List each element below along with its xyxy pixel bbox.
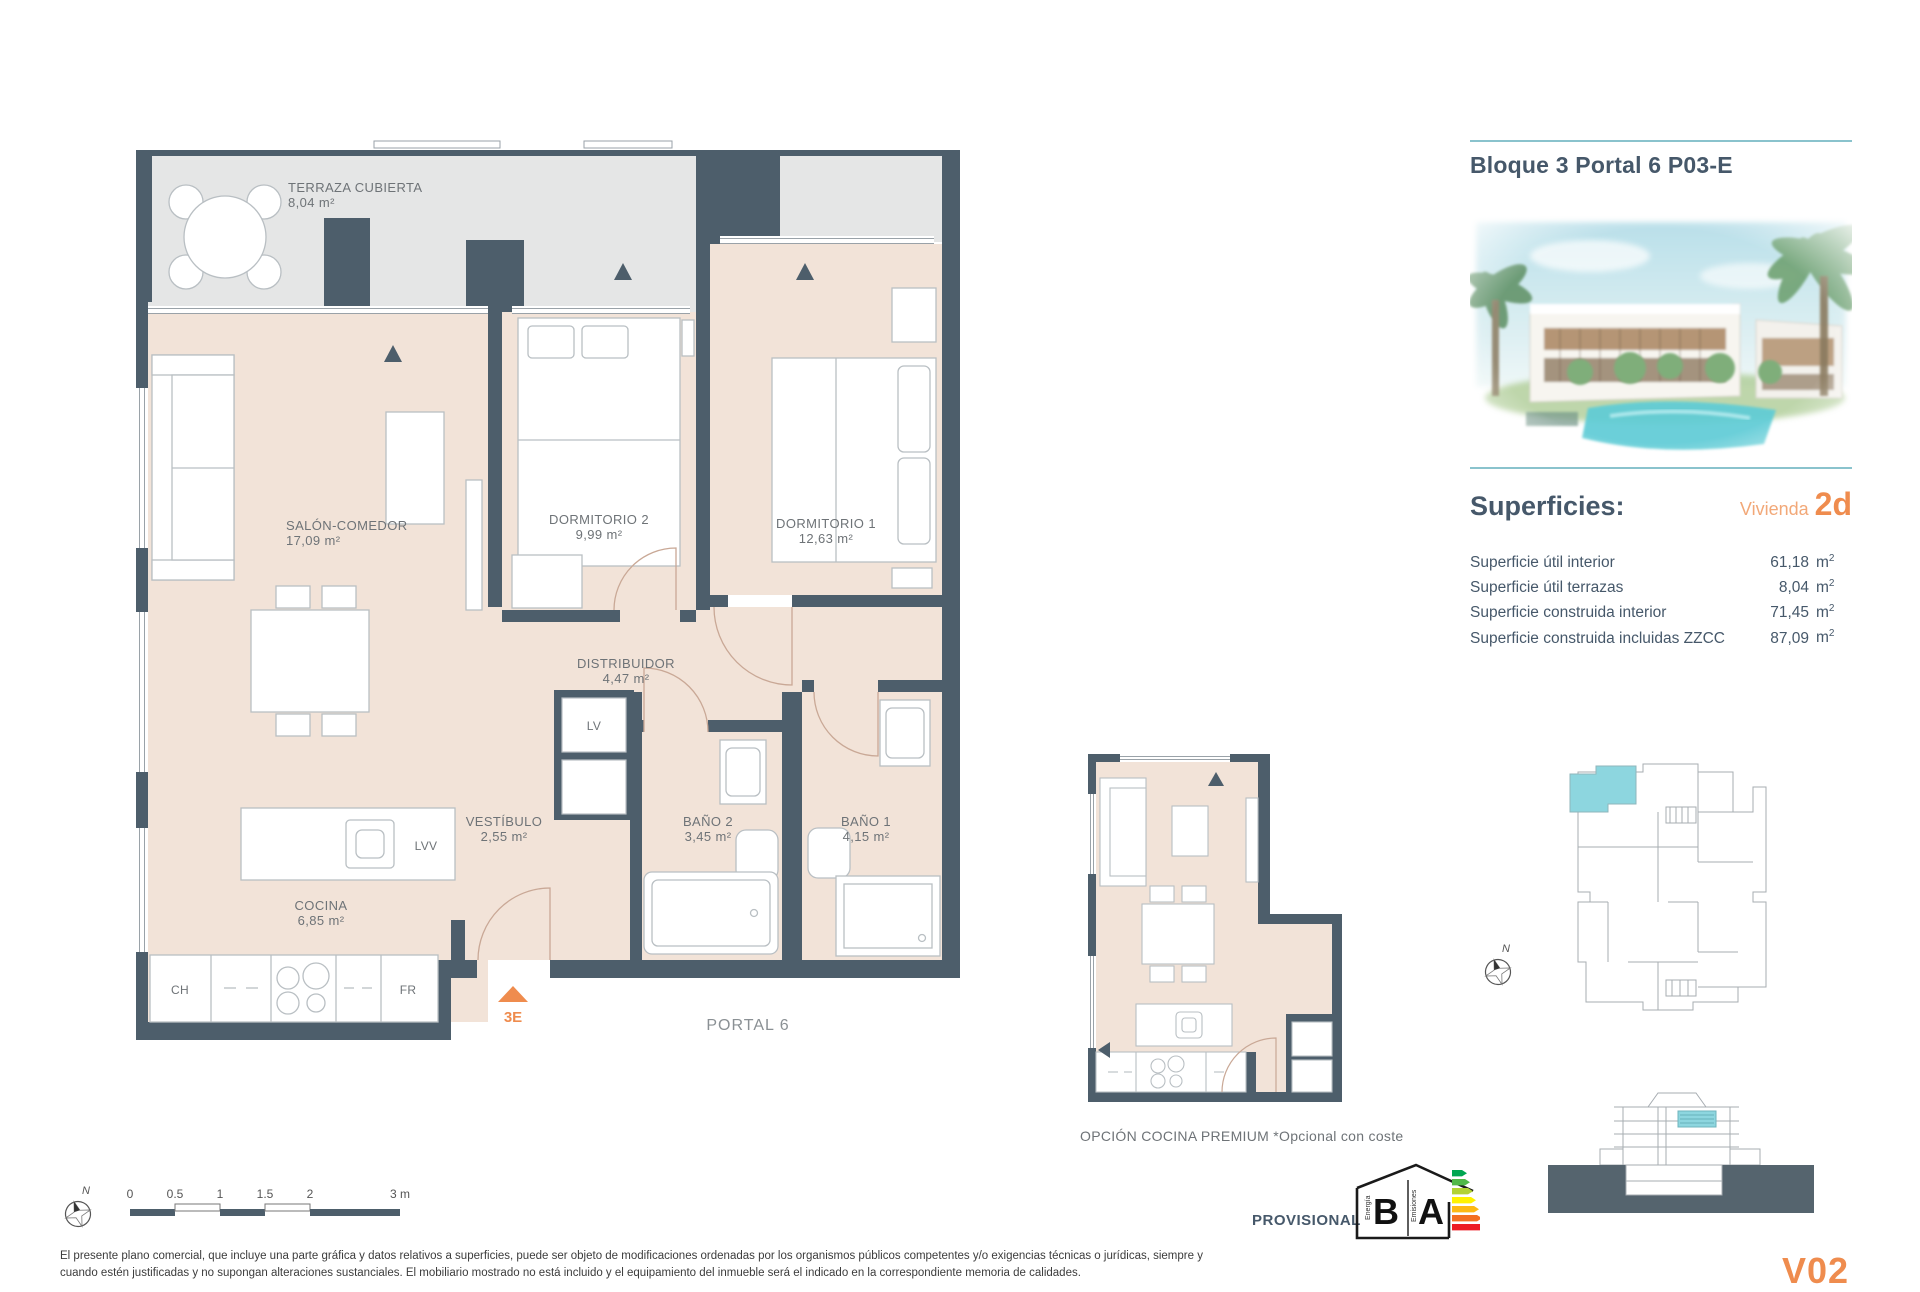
energy-arrows xyxy=(1452,1170,1480,1230)
main-floor-plan: TERRAZA CUBIERTA 8,04 m² SALÓN-COMEDOR 1… xyxy=(136,140,960,1040)
building-rendering-image xyxy=(1470,216,1852,456)
superficie-row: Superficie construida interior 71,45 m2 xyxy=(1470,598,1852,623)
superficie-value: 61,18 xyxy=(1751,552,1809,573)
vivienda-label: Vivienda xyxy=(1740,499,1809,519)
superficie-value: 87,09 xyxy=(1751,628,1809,649)
keyplan-compass: N xyxy=(1478,940,1522,992)
bedroom1-label: DORMITORIO 1 xyxy=(776,516,876,531)
superficie-value: 8,04 xyxy=(1751,577,1809,598)
entrance-code-label: 3E xyxy=(504,1009,522,1026)
lv-label: LV xyxy=(587,719,601,733)
svg-text:17,09 m²: 17,09 m² xyxy=(286,533,341,548)
superficie-label: Superficie construida incluidas ZZCC xyxy=(1470,628,1751,649)
superficie-unit: m2 xyxy=(1809,573,1852,598)
legal-disclaimer: El presente plano comercial, que incluye… xyxy=(60,1248,1310,1281)
kitchen-counter xyxy=(150,955,438,1022)
building-section xyxy=(1548,1085,1816,1217)
kitchen-label: COCINA xyxy=(295,898,348,913)
superficies-table: Superficie útil interior 61,18 m2 Superf… xyxy=(1470,548,1852,649)
svg-text:3,45 m²: 3,45 m² xyxy=(685,829,732,844)
superficie-row: Superficie útil interior 61,18 m2 xyxy=(1470,548,1852,573)
scale-tick: 3 m xyxy=(390,1187,410,1201)
svg-text:12,63 m²: 12,63 m² xyxy=(799,531,854,546)
hall-label: DISTRIBUIDOR xyxy=(577,656,675,671)
disclaimer-line: cuando estén justificadas y no supongan … xyxy=(60,1265,1310,1282)
fr-unit-label: FR xyxy=(400,983,417,997)
superficie-label: Superficie útil interior xyxy=(1470,552,1751,573)
provisional-label: PROVISIONAL xyxy=(1252,1212,1361,1229)
premium-kitchen-plan xyxy=(1080,746,1348,1106)
plan-compass: N xyxy=(58,1182,102,1234)
emissions-letter: A xyxy=(1418,1191,1444,1232)
scale-tick: 0 xyxy=(127,1187,134,1201)
svg-text:9,99 m²: 9,99 m² xyxy=(576,527,623,542)
terrace-table-set xyxy=(169,185,281,289)
superficie-unit: m2 xyxy=(1809,598,1852,623)
energy-certificate-icon: Energía Emisiones B A xyxy=(1352,1158,1480,1244)
bedroom2-label: DORMITORIO 2 xyxy=(549,512,649,527)
scale-tick: 2 xyxy=(307,1187,314,1201)
svg-text:6,85 m²: 6,85 m² xyxy=(298,913,345,928)
scale-tick: 1.5 xyxy=(257,1187,274,1201)
bedroom2-furniture xyxy=(512,318,694,608)
key-plan xyxy=(1548,752,1798,1052)
highlighted-floor xyxy=(1678,1111,1716,1127)
superficie-label: Superficie útil terrazas xyxy=(1470,577,1751,598)
scale-tick: 0.5 xyxy=(167,1187,184,1201)
terrace-label: TERRAZA CUBIERTA xyxy=(288,180,423,195)
superficie-label: Superficie construida interior xyxy=(1470,602,1751,623)
superficies-header: Superficies: Vivienda2d xyxy=(1470,486,1852,523)
superficie-unit: m2 xyxy=(1809,548,1852,573)
entrance-triangle-icon xyxy=(498,986,528,1002)
energy-letter: B xyxy=(1373,1191,1399,1232)
terrace-strip-floor xyxy=(780,156,942,242)
floorplan-sheet: { "header": { "title": "Bloque 3 Portal … xyxy=(0,0,1920,1280)
mid-divider xyxy=(1470,467,1852,469)
compass-north-label: N xyxy=(1502,943,1510,955)
svg-text:4,47 m²: 4,47 m² xyxy=(603,671,650,686)
portal-label: PORTAL 6 xyxy=(706,1017,789,1034)
living-label: SALÓN-COMEDOR xyxy=(286,518,408,533)
superficie-unit: m2 xyxy=(1809,623,1852,648)
superficies-heading: Superficies: xyxy=(1470,491,1625,522)
vestibule-label: VESTÍBULO xyxy=(466,814,543,829)
energy-axis-label: Energía xyxy=(1365,1195,1372,1220)
lvv-label: LVV xyxy=(415,839,438,853)
superficie-row: Superficie útil terrazas 8,04 m2 xyxy=(1470,573,1852,598)
svg-text:4,15 m²: 4,15 m² xyxy=(843,829,890,844)
top-divider xyxy=(1470,140,1852,142)
svg-text:8,04 m²: 8,04 m² xyxy=(288,195,335,210)
scale-tick: 1 xyxy=(217,1187,224,1201)
compass-north-label: N xyxy=(82,1185,90,1197)
sheet-version: V02 xyxy=(1782,1250,1849,1292)
page-title: Bloque 3 Portal 6 P03-E xyxy=(1470,152,1733,179)
superficie-row: Superficie construida incluidas ZZCC 87,… xyxy=(1470,623,1852,648)
vivienda-code: 2d xyxy=(1815,486,1852,522)
bath1-label: BAÑO 1 xyxy=(841,814,891,829)
ch-unit-label: CH xyxy=(171,983,189,997)
scale-bar: 0 0.5 1 1.5 2 3 m xyxy=(120,1184,410,1228)
disclaimer-line: El presente plano comercial, que incluye… xyxy=(60,1248,1310,1265)
svg-text:2,55 m²: 2,55 m² xyxy=(481,829,528,844)
superficie-value: 71,45 xyxy=(1751,602,1809,623)
premium-kitchen-caption: OPCIÓN COCINA PREMIUM *Opcional con cost… xyxy=(1080,1128,1440,1144)
emissions-axis-label: Emisiones xyxy=(1411,1189,1418,1222)
bath2-label: BAÑO 2 xyxy=(683,814,733,829)
highlighted-unit xyxy=(1570,766,1636,812)
